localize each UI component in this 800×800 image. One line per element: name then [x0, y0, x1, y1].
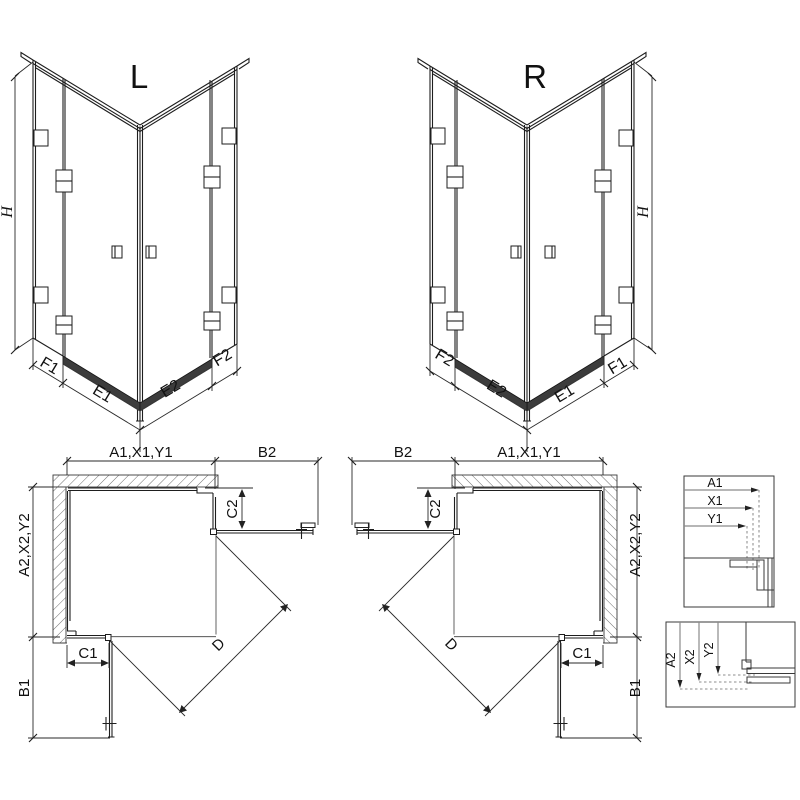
detail-x1-label: X1: [707, 494, 722, 508]
plan-left-depth-label: A2,X2,Y2: [16, 513, 33, 576]
plan-right-depth-label: A2,X2,Y2: [627, 513, 644, 576]
detail-box-vertical: A2 X2 Y2: [662, 618, 800, 713]
dimension-diagram-canvas: L H F1 E1 E2 F2 R H F2 E2 E1 F1 A1,X1,Y1…: [0, 0, 800, 800]
plan-left-c2-label: C2: [224, 499, 241, 518]
plan-view-left: A1,X1,Y1 B2 A2,X2,Y2 B1 C2 C1 D: [10, 445, 330, 755]
plan-left-b2-label: B2: [258, 444, 276, 461]
detail-vertical-profile-section: [680, 622, 795, 689]
plan-left-c1-label: C1: [78, 645, 97, 662]
plan-right-b2-label: B2: [394, 444, 412, 461]
detail-x2-label: X2: [683, 649, 697, 664]
plan-right-c2-label: C2: [427, 499, 444, 518]
iso-right-f1-label: F1: [605, 354, 630, 378]
plan-left-drawing: [28, 457, 322, 742]
iso-right-drawing: [418, 53, 656, 453]
detail-a2-label: A2: [664, 652, 678, 667]
iso-left-drawing: [11, 53, 249, 453]
plan-right-drawing: [348, 457, 642, 742]
detail-box-horizontal: A1 X1 Y1: [680, 472, 780, 612]
iso-left-height-label: H: [0, 205, 16, 219]
plan-right-width-label: A1,X1,Y1: [497, 444, 560, 461]
iso-view-left: L H F1 E1 E2 F2: [0, 40, 270, 440]
iso-right-height-label: H: [635, 205, 652, 219]
plan-right-b1-label: B1: [627, 679, 644, 697]
iso-right-title: R: [523, 58, 547, 95]
iso-view-right: R H F2 E2 E1 F1: [397, 40, 667, 440]
iso-left-title: L: [130, 58, 148, 95]
plan-left-d-label: D: [209, 635, 229, 655]
iso-left-f2-label: F2: [210, 346, 235, 370]
iso-left-f1-label: F1: [37, 354, 62, 378]
plan-left-b1-label: B1: [16, 679, 33, 697]
detail-y2-label: Y2: [702, 642, 716, 657]
plan-right-d-label: D: [441, 635, 461, 655]
detail-a1-label: A1: [707, 476, 722, 490]
plan-right-c1-label: C1: [572, 645, 591, 662]
plan-view-right: B2 A1,X1,Y1 A2,X2,Y2 B1 C2 C1 D: [340, 445, 660, 755]
iso-right-f2-label: F2: [432, 346, 457, 370]
detail-y1-label: Y1: [707, 512, 722, 526]
plan-left-width-label: A1,X1,Y1: [109, 444, 172, 461]
